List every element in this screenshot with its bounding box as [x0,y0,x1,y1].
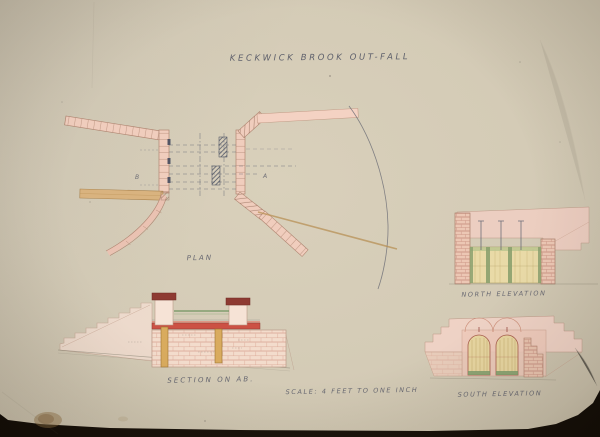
plan-lower-left-wall [80,189,163,200]
section-left-pier [152,293,176,325]
section-marker-a: A [262,173,267,180]
south-elevation-label: SOUTH ELEVATION [458,389,543,398]
gate-guide [486,247,490,283]
plan-upper-left-wall [65,116,163,140]
plan-label: PLAN [187,254,214,262]
plan-sluice-gate [219,137,227,157]
north-elevation-label: NORTH ELEVATION [461,289,546,298]
south-left-wing [425,352,462,376]
plan-bank-curve [349,106,388,289]
plan-gate-mark [168,139,171,145]
gate-guide [470,247,473,283]
plan-upper-right-wall [257,108,358,123]
section-wall [152,330,294,370]
section-timber-post [161,327,168,367]
north-right-pier [541,239,555,284]
south-ground-line [430,378,556,380]
section-embankment-steps [60,303,152,361]
scale-note: SCALE: 4 FEET TO ONE INCH [286,386,419,396]
north-elevation-view: NORTH ELEVATION [449,207,598,299]
north-sluice-gates [470,247,541,283]
gate-guide [538,247,541,283]
plan-sluice-gate [212,166,220,185]
north-embankment [457,207,589,250]
section-view: SECTION ON AB. [58,293,294,385]
north-left-pier [455,213,470,284]
plan-left-wall [159,130,171,193]
plan-gate-mark [168,158,171,164]
section-marker-b: B [135,174,139,181]
paper-crease [92,2,94,88]
drawing-title: KECKWICK BROOK OUT-FALL [230,52,410,64]
south-elevation-view: SOUTH ELEVATION [425,316,597,399]
section-label: SECTION ON AB. [167,375,254,385]
plan-lower-left-splay [106,192,169,256]
photo-backdrop: A B PLAN [0,0,600,437]
plan-view: A B PLAN [65,106,397,289]
section-right-pier [226,298,250,325]
section-timber-post [215,329,222,363]
section-pier-cap [226,298,250,305]
south-arch-sill [468,371,490,375]
plan-right-wall [236,130,245,194]
plan-lower-right-wall [259,211,308,256]
south-arch-sill [496,371,518,375]
gate-guide [508,247,512,283]
drawing-art: A B PLAN [0,0,600,437]
section-pier-cap [152,293,176,300]
